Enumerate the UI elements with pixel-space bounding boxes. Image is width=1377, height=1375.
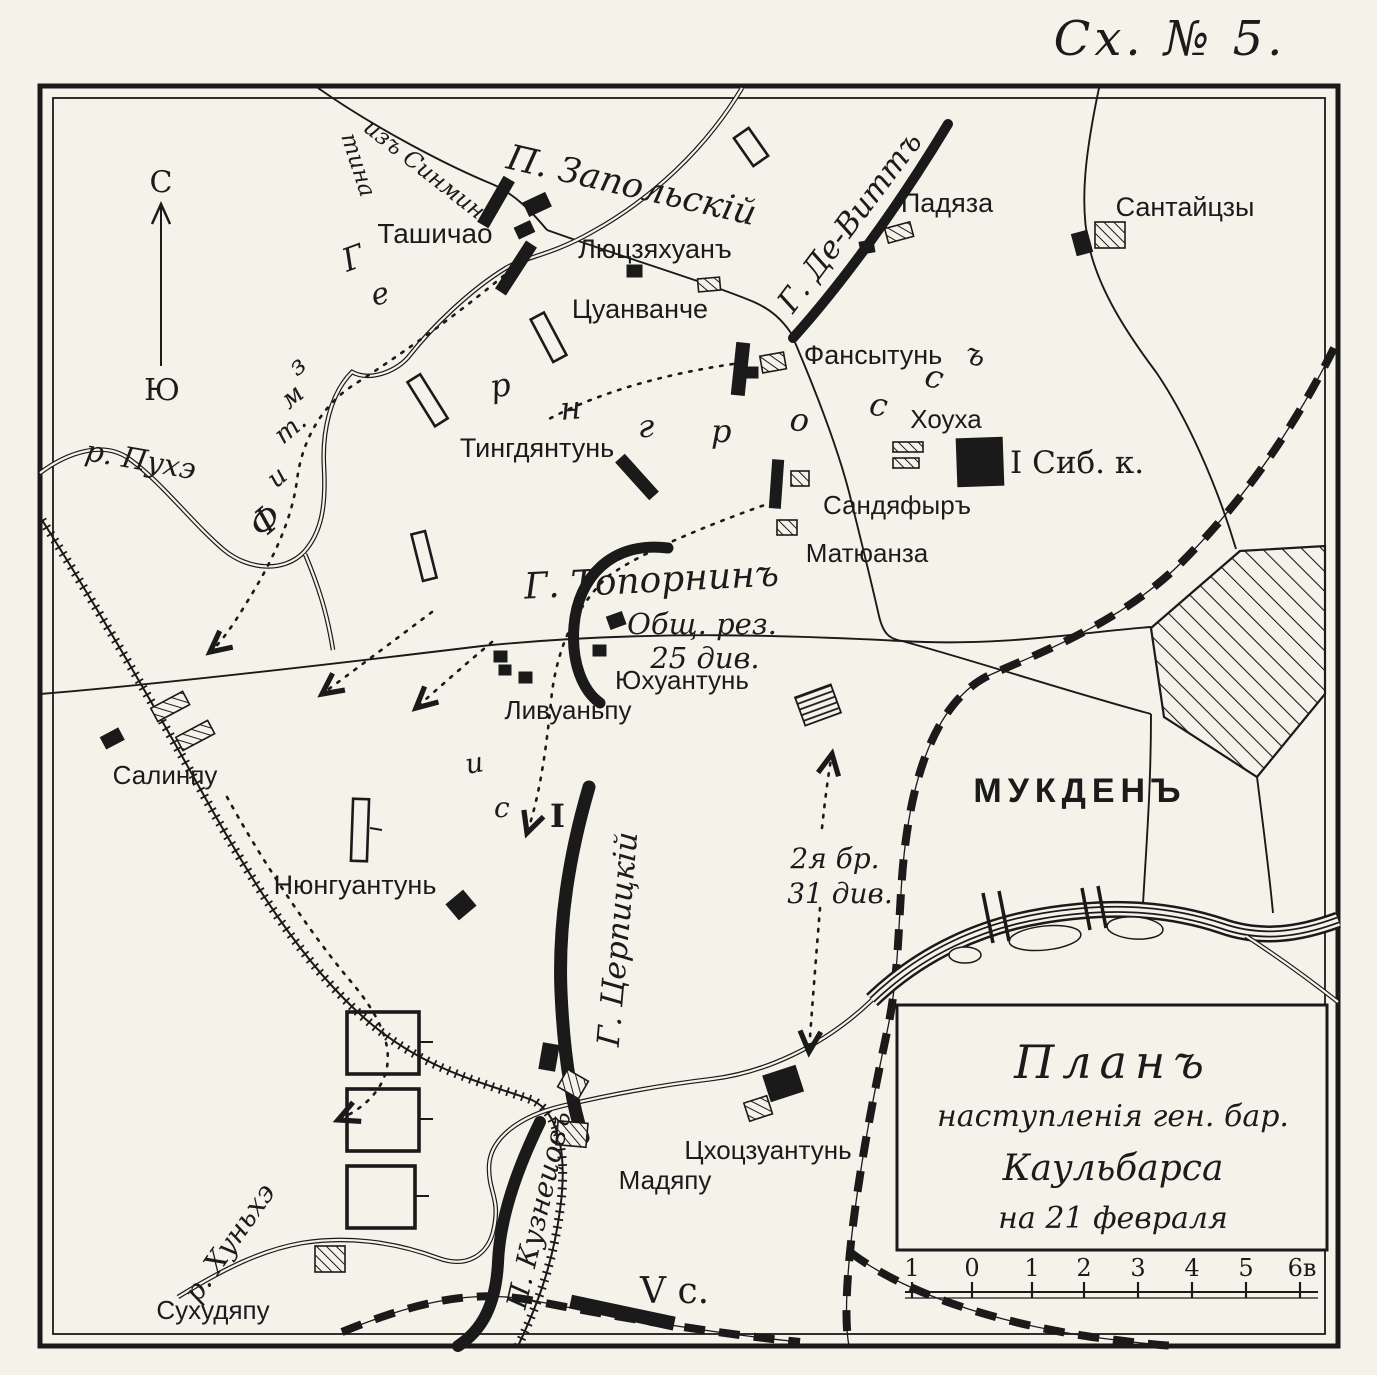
- scale-tick-label: 4: [1184, 1254, 1199, 1282]
- compass-north-label: С: [150, 165, 173, 200]
- place-nyunguantun: Нюнгуантунь: [274, 870, 437, 900]
- route-letter: о: [788, 400, 811, 440]
- sib-corps-block: [956, 437, 1004, 487]
- sib-corps-label: I Сиб. к.: [1010, 445, 1144, 481]
- v-corps-label: V с.: [639, 1271, 709, 1312]
- scale-tick-label: 6в: [1288, 1254, 1317, 1282]
- place-fansytun: Фансытунь: [804, 340, 943, 370]
- compass-south-label: Ю: [144, 373, 180, 408]
- scale-tick-label: 2: [1076, 1254, 1091, 1282]
- place-sukhudyapu: Сухудяпу: [156, 1295, 269, 1325]
- division-31-label: 31 див.: [787, 877, 893, 910]
- legend-title: Планъ: [1013, 1035, 1212, 1089]
- place-sandyafyr: Сандяфыръ: [823, 490, 971, 520]
- brigade-2-label: 2я бр.: [789, 842, 879, 875]
- legend: Планъ наступленія ген. бар. Каульбарса н…: [897, 1005, 1327, 1250]
- place-padyaza: Падяза: [901, 188, 994, 218]
- place-tashichao: Ташичао: [377, 218, 492, 249]
- general-reserve-label: Общ. рез.: [627, 607, 777, 641]
- place-livuanpu: Ливуаньпу: [505, 695, 632, 725]
- route-letter: с: [494, 791, 510, 824]
- map-canvas: Сх. № 5.: [0, 0, 1377, 1375]
- legend-date: на 21 февраля: [998, 1201, 1228, 1236]
- river-island: [949, 947, 981, 963]
- route-letter: г: [638, 407, 654, 445]
- scale-tick-label: 1: [904, 1254, 919, 1282]
- legend-subtitle-1: наступленія ген. бар.: [937, 1099, 1289, 1134]
- place-madyapu: Мадяпу: [619, 1165, 712, 1195]
- place-khoukha: Хоуха: [910, 404, 982, 434]
- scale-tick-label: 3: [1130, 1254, 1145, 1282]
- place-yukhuantun: Юхуантунь: [615, 665, 749, 695]
- place-lyutszyakhuan: Люцзяхуанъ: [578, 234, 732, 264]
- place-salinpu: Салинпу: [113, 760, 218, 790]
- scale-tick-label: 0: [964, 1254, 979, 1282]
- place-tingdyantun: Тингдянтунь: [460, 433, 614, 463]
- place-matyuanza: Матюанза: [806, 538, 929, 568]
- route-letter: н: [558, 388, 582, 428]
- scale-tick-label: 5: [1238, 1254, 1253, 1282]
- route-letter: I: [550, 797, 565, 835]
- sheet-title: Сх. № 5.: [1054, 11, 1287, 67]
- scale-tick-label: 1: [1024, 1254, 1039, 1282]
- legend-subtitle-2: Каульбарса: [1002, 1148, 1224, 1189]
- map-page: Сх. № 5.: [0, 0, 1377, 1375]
- route-letter: р: [711, 412, 731, 450]
- place-tsuanvanche: Цуанванче: [572, 294, 708, 324]
- place-mukden: МУКДЕНЪ: [973, 772, 1186, 810]
- place-santaitszy: Сантайцзы: [1116, 192, 1255, 222]
- place-tskhotszuantun: Цхоцзуантунь: [684, 1135, 851, 1165]
